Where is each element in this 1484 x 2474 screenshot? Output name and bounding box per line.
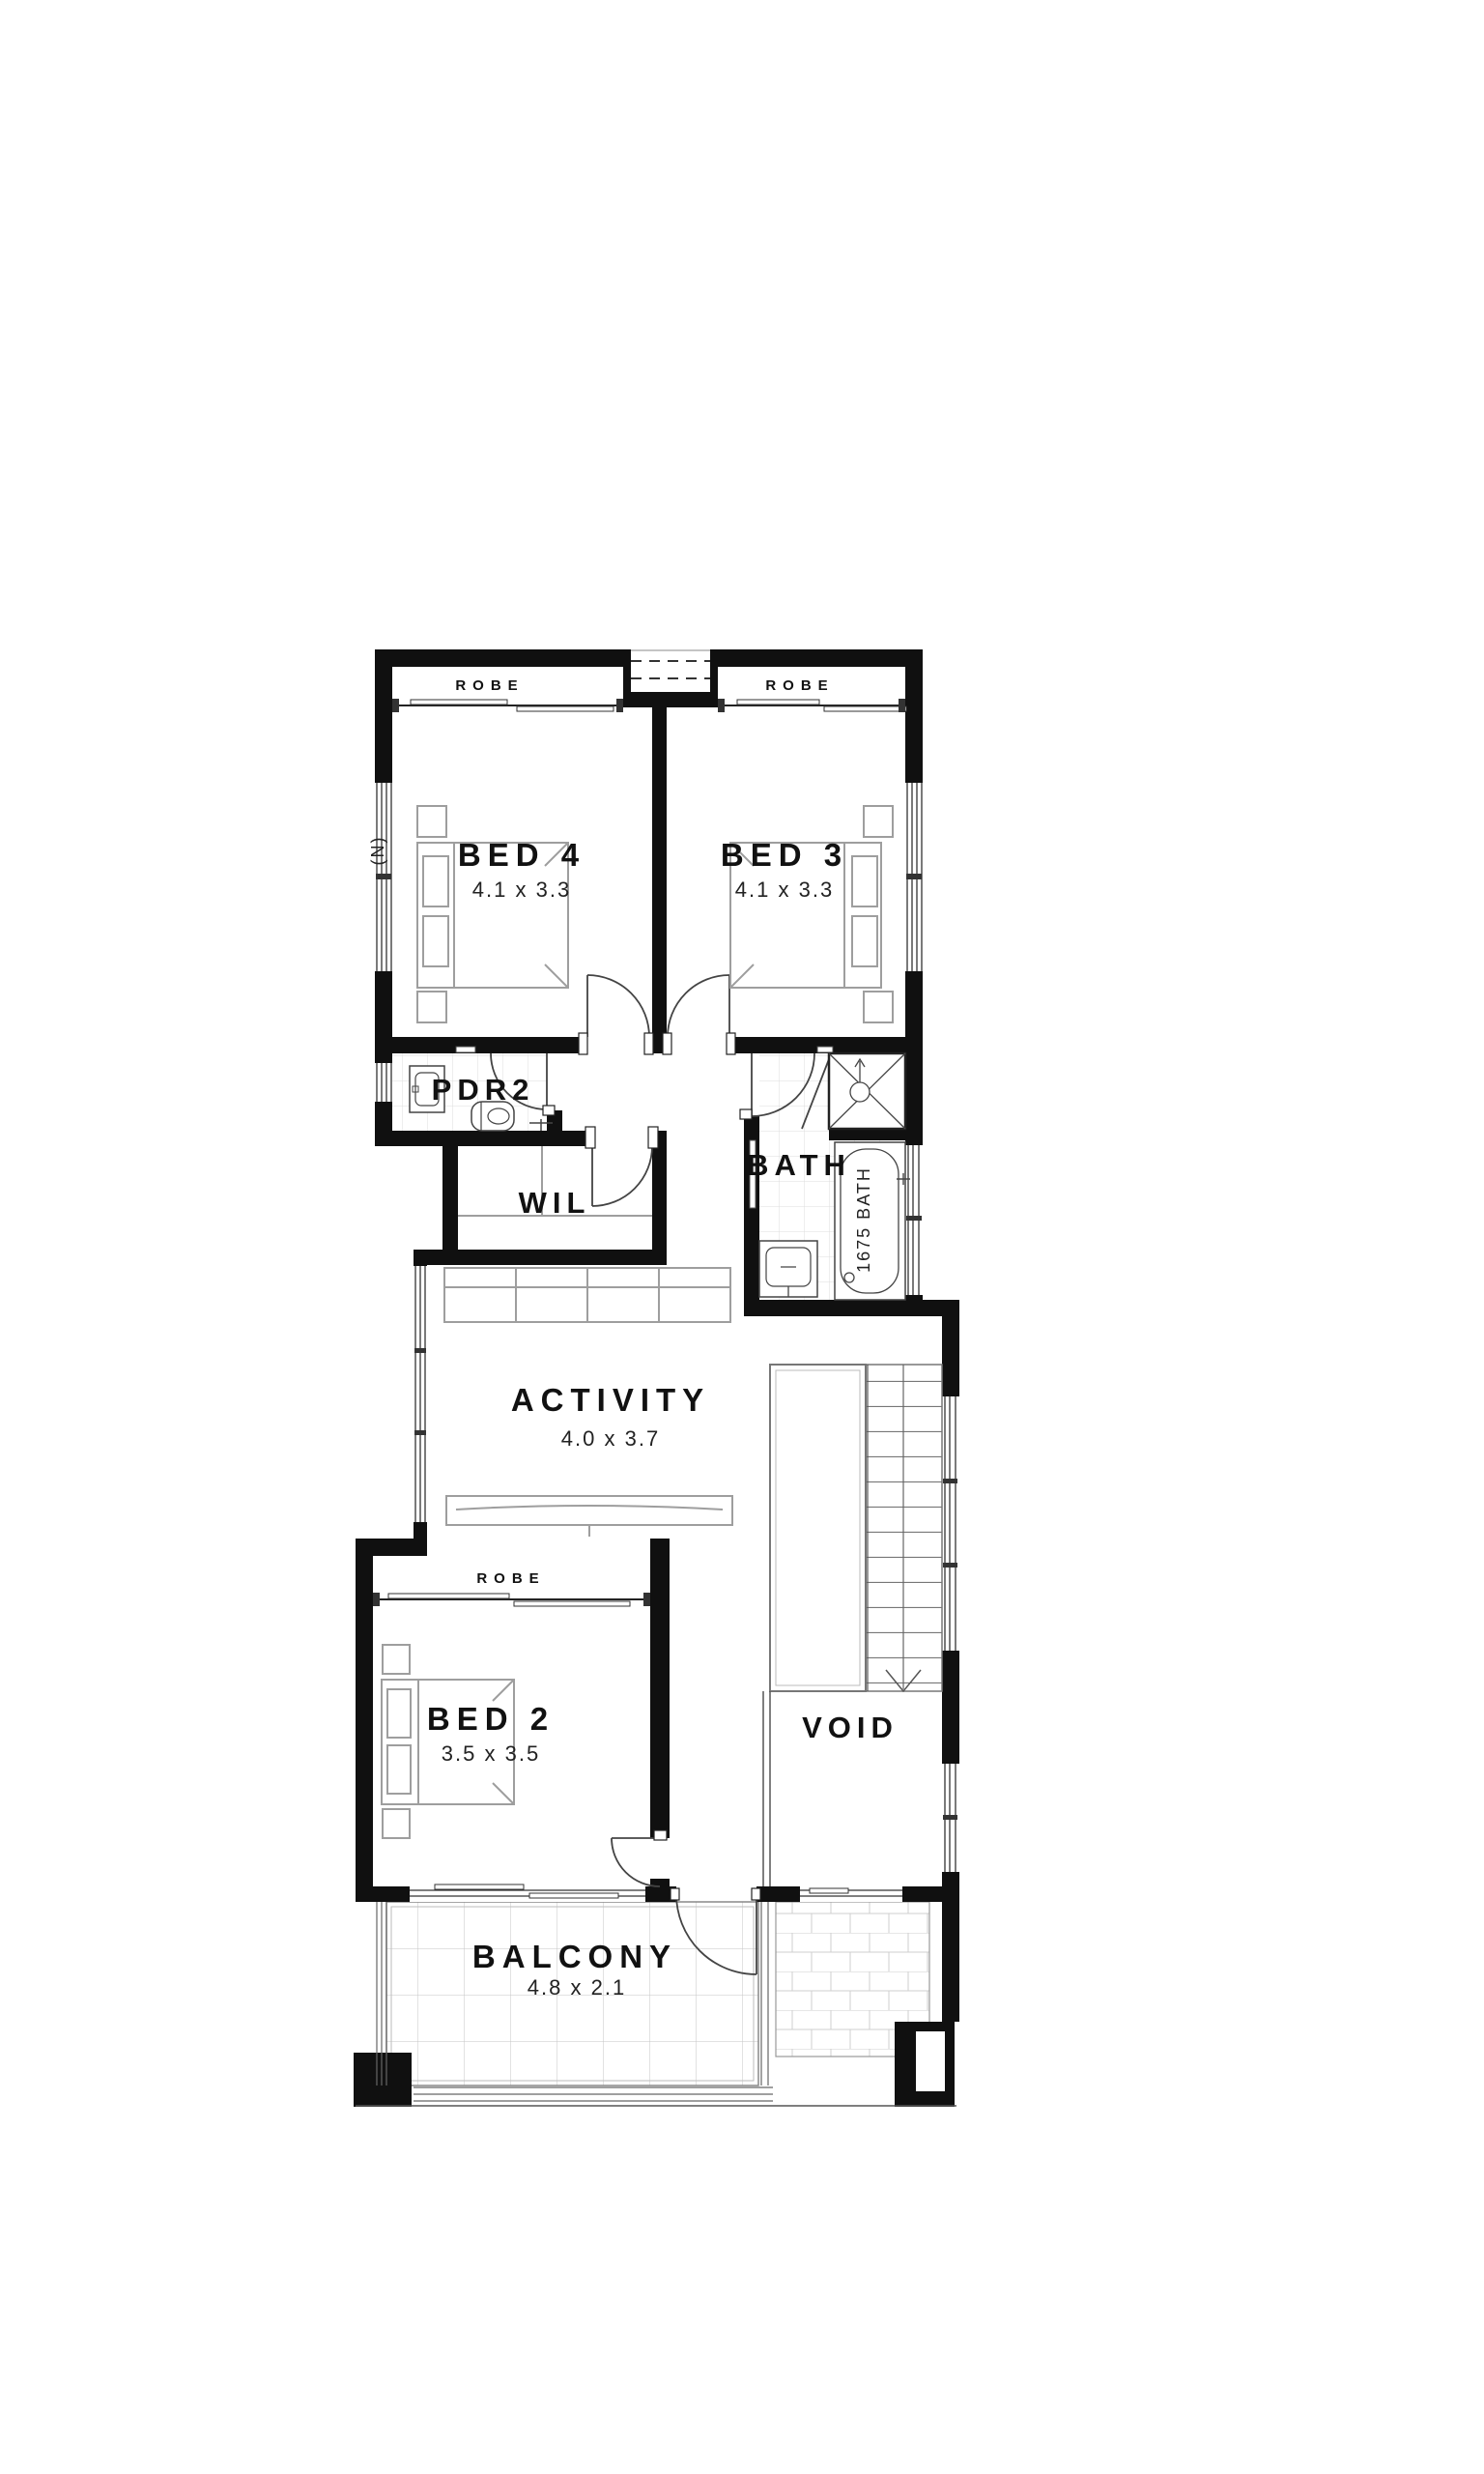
void-bottom-window: [800, 1886, 902, 1902]
north-indicator-icon: (N): [368, 836, 387, 866]
bath-tub-size-label: 1675 BATH: [854, 1166, 873, 1273]
floor-plan: ROBE ROBE BED 4 4.1 x 3.3 BED 3 4.1 x 3.…: [0, 0, 1484, 2474]
robe-bed3-label: ROBE: [765, 677, 834, 694]
bed3-dims: 4.1 x 3.3: [735, 877, 834, 902]
wil-label: WIL: [519, 1186, 591, 1220]
bath-window: [905, 1145, 923, 1295]
stair-void-balustrade: [770, 1365, 866, 1691]
balcony-dims: 4.8 x 2.1: [528, 1975, 626, 1999]
bath-label: BATH: [747, 1148, 851, 1182]
bed4-door-arc: [587, 975, 649, 1037]
bed3-door-arc: [668, 975, 729, 1037]
bed2-label: BED 2: [427, 1701, 555, 1737]
activity-dims: 4.0 x 3.7: [561, 1426, 660, 1451]
activity-label: ACTIVITY: [511, 1382, 710, 1418]
activity-window: [414, 1266, 427, 1522]
bed4-dims: 4.1 x 3.3: [472, 877, 571, 902]
bed4-window: [375, 783, 392, 971]
pdr2-towel-rail: [456, 1047, 475, 1052]
bed2-dims: 3.5 x 3.5: [442, 1741, 540, 1766]
bed2-balcony-window: [410, 1884, 645, 1902]
void-window: [942, 1764, 959, 1872]
robe-bed4-label: ROBE: [455, 677, 524, 694]
bath-shower: [829, 1053, 905, 1129]
bottom-right-notch: [916, 2031, 945, 2091]
bed4-label: BED 4: [458, 837, 585, 873]
wil-door-arc: [592, 1146, 652, 1206]
bed3-label: BED 3: [721, 837, 848, 873]
bed3-window: [905, 783, 923, 971]
stairs: [763, 1365, 942, 1886]
bath-vanity: [759, 1241, 817, 1297]
pdr2-window: [375, 1063, 392, 1102]
pdr2-label: PDR2: [432, 1073, 535, 1107]
void-label: VOID: [802, 1711, 899, 1744]
floor-plan-page: ROBE ROBE BED 4 4.1 x 3.3 BED 3 4.1 x 3.…: [0, 0, 1484, 2474]
activity-sofa: [444, 1268, 730, 1322]
bath-towel-rail: [817, 1047, 833, 1052]
stair-window: [942, 1396, 959, 1651]
balcony-label: BALCONY: [472, 1939, 677, 1974]
robe-bed2-label: ROBE: [476, 1570, 545, 1587]
activity-desk: [446, 1496, 732, 1537]
